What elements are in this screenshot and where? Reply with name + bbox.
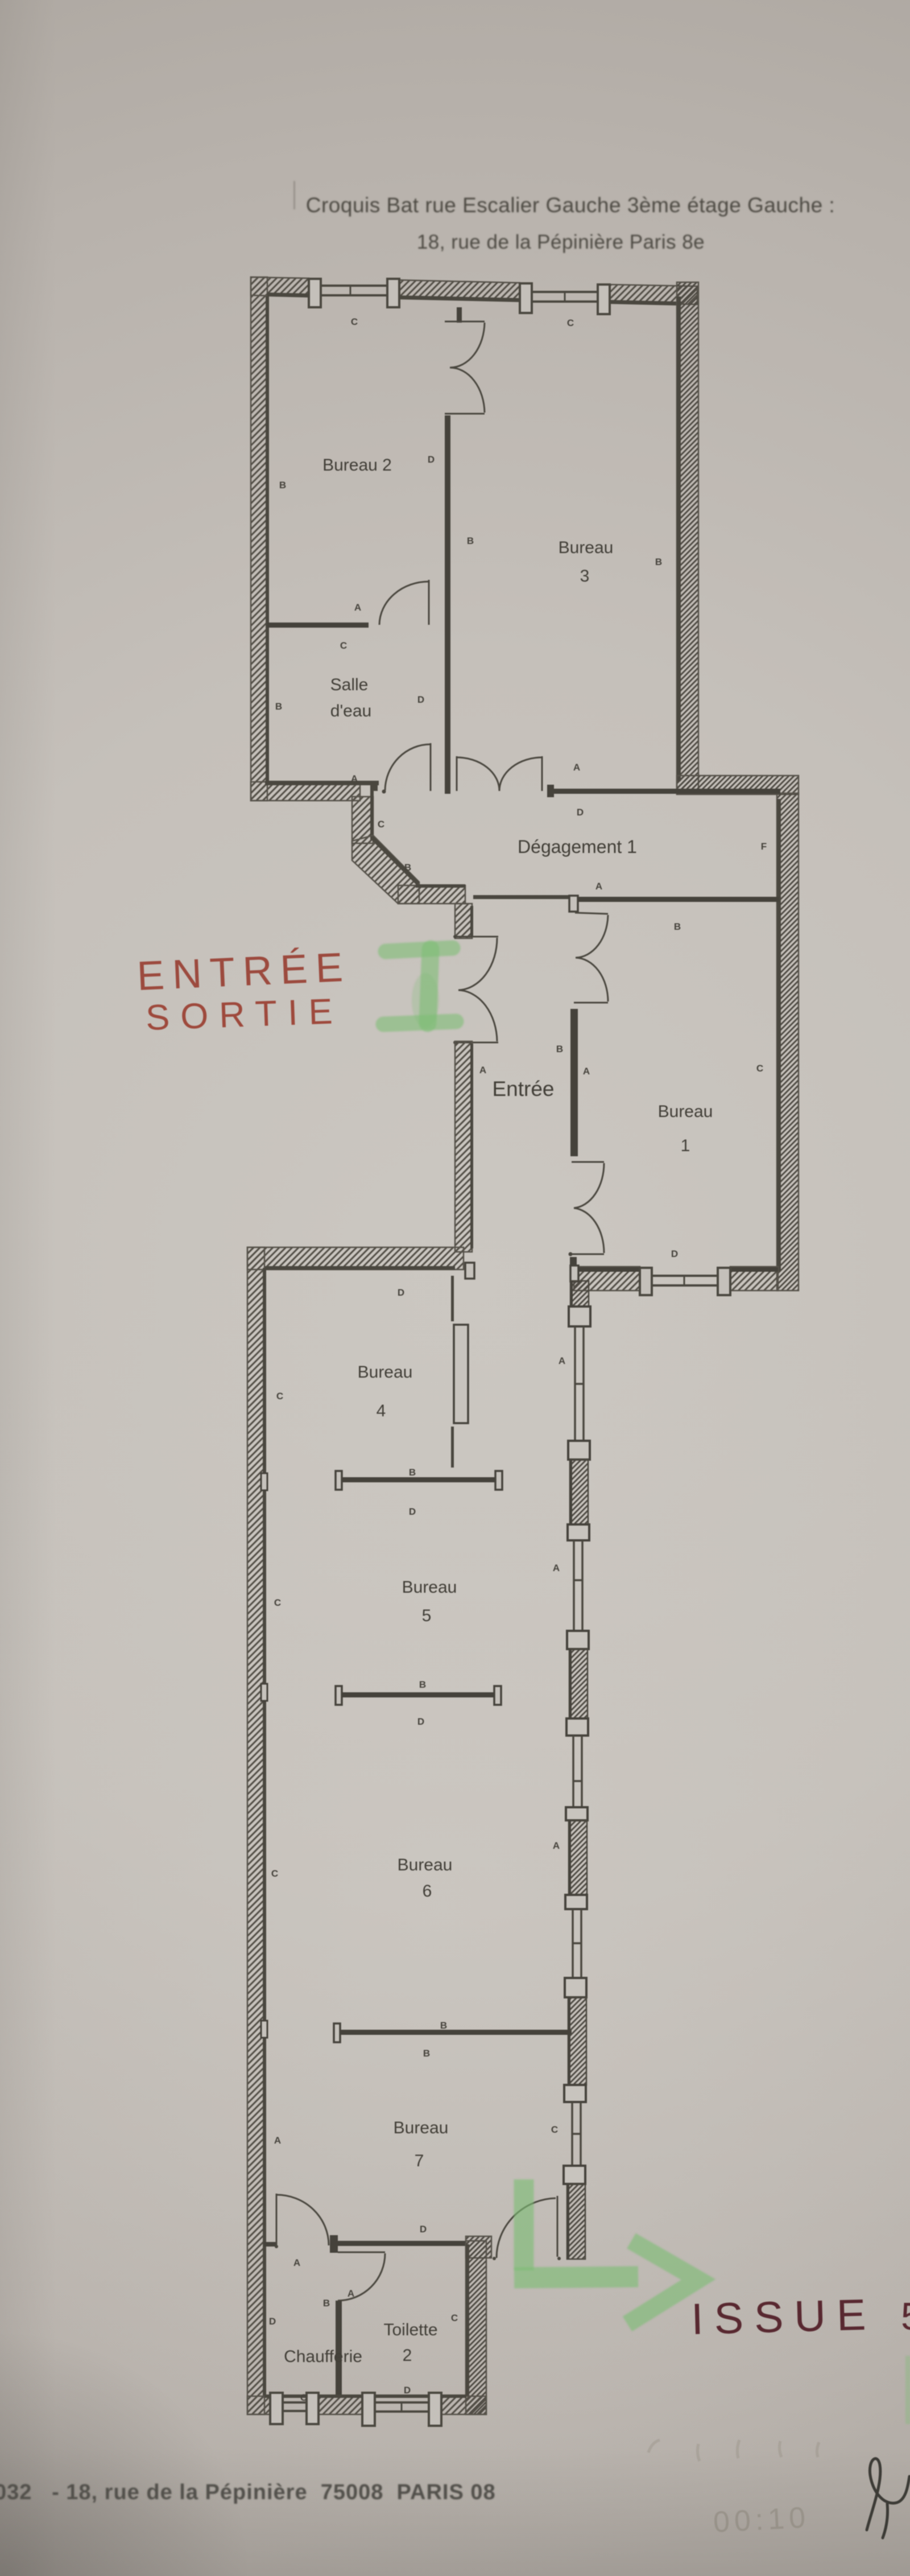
svg-text:A: A [351,773,358,784]
svg-text:A: A [354,602,361,613]
svg-text:C: C [300,2392,307,2403]
svg-text:C: C [274,1597,281,1608]
svg-text:B: B [275,701,282,712]
svg-text:B: B [556,1044,563,1054]
svg-text:B: B [440,2020,447,2031]
svg-text:F: F [761,841,767,852]
svg-text:A: A [479,1065,486,1075]
svg-text:6: 6 [423,1882,432,1901]
svg-text:Bureau: Bureau [394,2118,449,2137]
svg-text:Dégagement 1: Dégagement 1 [518,836,637,857]
svg-text:C: C [271,1868,278,1879]
svg-text:Bureau: Bureau [398,1856,453,1874]
svg-text:Bureau: Bureau [658,1102,713,1121]
svg-text:D: D [577,807,584,818]
svg-text:A: A [559,1355,565,1366]
svg-text:3: 3 [580,567,590,586]
svg-text:B: B [279,480,286,491]
svg-text:D: D [404,2385,411,2396]
svg-text:D: D [417,694,424,705]
svg-text:1: 1 [681,1136,690,1155]
svg-text:Salle: Salle [330,675,369,694]
svg-text:D: D [420,2224,427,2235]
svg-text:B: B [655,557,662,567]
svg-text:B: B [674,921,681,932]
svg-text:C: C [340,640,347,651]
svg-text:C: C [567,318,574,328]
svg-text:C: C [756,1063,763,1074]
svg-text:C: C [276,1391,283,1402]
svg-text:C: C [351,316,358,327]
svg-text:5: 5 [422,1606,432,1625]
svg-text:D: D [269,2316,276,2327]
svg-text:18, rue de la Pépinière Paris: 18, rue de la Pépinière Paris 8e [417,231,705,253]
svg-text:A: A [583,1066,590,1077]
svg-text:A: A [293,2257,300,2268]
svg-text:Bureau 2: Bureau 2 [322,456,392,475]
svg-text:B: B [409,1467,416,1478]
svg-text:B: B [423,2048,430,2059]
svg-text:2: 2 [403,2346,412,2365]
svg-text:A: A [553,1840,560,1851]
svg-text:Bureau: Bureau [402,1578,457,1597]
svg-text:7: 7 [415,2152,424,2170]
svg-text:Croquis Bat rue Escalier Gauch: Croquis Bat rue Escalier Gauche 3ème éta… [306,193,835,217]
svg-text:d'eau: d'eau [330,702,371,720]
svg-text:A: A [274,2135,281,2146]
svg-text:C: C [451,2313,458,2323]
svg-text:Bureau: Bureau [358,1363,413,1382]
svg-text:D: D [417,1716,424,1727]
svg-text:ISSUE: ISSUE [690,2290,877,2344]
svg-text:A: A [595,881,602,892]
svg-text:Toilette: Toilette [383,2321,437,2339]
svg-text:00:10: 00:10 [713,2501,811,2539]
svg-text:Bureau: Bureau [559,538,614,557]
svg-text:C: C [378,819,384,830]
svg-text:A: A [348,2288,354,2299]
svg-text:SORTIE: SORTIE [145,991,344,1038]
svg-text:D: D [671,1248,678,1259]
svg-text:Entrée: Entrée [492,1077,554,1101]
svg-text:B: B [419,1679,426,1690]
svg-text:Chaufferie: Chaufferie [284,2347,362,2366]
svg-text:A: A [553,1563,560,1573]
svg-text:B: B [404,862,411,873]
svg-text:B: B [323,2298,330,2309]
svg-text:032 - 18, rue de la Pépinièr: 032 - 18, rue de la Pépinière 75008 PARI… [0,2480,496,2504]
svg-text:4: 4 [377,1402,386,1420]
svg-text:D: D [428,454,435,465]
svg-text:A: A [573,762,580,773]
svg-text:C: C [551,2124,558,2135]
svg-text:D: D [409,1506,416,1517]
svg-text:5: 5 [901,2295,910,2338]
svg-text:B: B [467,535,474,546]
svg-text:ENTRÉE: ENTRÉE [136,945,351,999]
svg-text:D: D [398,1287,404,1298]
